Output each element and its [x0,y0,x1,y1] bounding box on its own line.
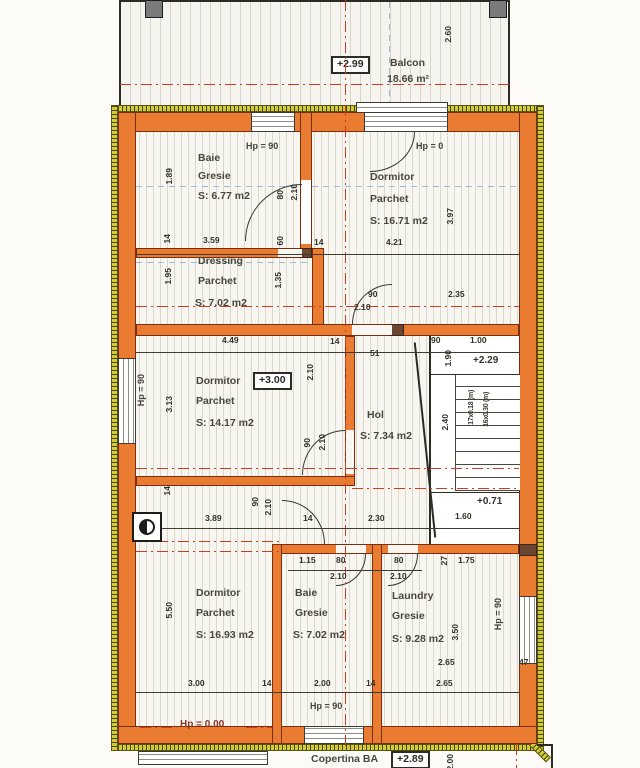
dim: 27 [440,556,449,565]
axis-line [246,727,272,728]
dim: 14 [314,238,323,247]
dim: 2.10 [264,499,273,516]
parapet-note: Hp = 0.00 [180,720,224,730]
insulation [118,105,537,112]
canopy-label: Copertina BA [311,754,378,765]
door-opening [278,249,302,257]
dim: 14 [303,514,312,523]
room-baie1-area: S: 6.77 m2 [198,191,250,202]
room-baie1-finish: Gresie [198,171,231,182]
room-laundry-area: S: 9.28 m2 [392,634,444,645]
dimension-line [136,352,519,353]
dim: 2.00 [314,679,331,688]
dim: 3.00 [188,679,205,688]
window [118,358,136,444]
dim: 3.13 [165,396,174,413]
beam-dash [136,551,282,552]
dim: 1.95 [164,268,173,285]
axis-line [136,186,519,187]
room-baie1-name: Baie [198,153,220,164]
parapet-note: Hp = 90 [494,598,503,630]
dim-balcony-depth: 2.60 [444,26,453,43]
dim: 5.50 [165,602,174,619]
insulation [537,105,544,751]
dim-stair-run: 1.60 [455,512,472,521]
insulation [118,744,537,751]
dimension-line [136,254,519,255]
dim: 2.30 [368,514,385,523]
wall-exterior-top [118,112,537,132]
room-dorm3-finish: Parchet [196,608,235,619]
dim: 47 [519,658,528,667]
vent-icon-core [139,519,155,535]
dim: 1.89 [165,168,174,185]
wall-post [519,544,537,556]
level-marker: +2.89 [391,751,430,768]
dim: 3.89 [205,514,222,523]
level-text: +2.29 [473,356,498,366]
canopy-outline [551,744,553,768]
dim-stair-width: 2.40 [441,414,450,431]
dim-stair-landing: 1.90 [444,350,453,367]
room-hol-name: Hol [367,410,384,421]
door-opening [301,180,311,244]
axis-line [140,727,176,728]
dim: 80 [394,556,403,565]
room-laundry-finish: Gresie [392,611,425,622]
balcony-door-leaf [356,102,448,113]
room-baie2-name: Baie [295,588,317,599]
dim: 2.65 [436,679,453,688]
stair-landing-line [430,492,519,493]
dim: 2.10 [318,434,327,451]
floor-plan: +2.99 Balcon 18.66 m² 2.60 [0,0,640,768]
balcony-edge-left [119,0,121,112]
dim: 3.50 [451,624,460,641]
wall-interior [312,248,324,336]
parapet-note: Hp = 90 [246,142,278,151]
pillar [489,0,507,18]
parapet-note: Hp = 90 [137,374,146,406]
window [519,596,537,664]
balcony-door-opening [364,112,448,132]
dim: 2.35 [448,290,465,299]
dim: 4.21 [386,238,403,247]
dim: 1.00 [470,336,487,345]
dim: 14 [163,486,172,495]
level-marker: +3.00 [253,372,292,390]
dim: 4.49 [222,336,239,345]
stair-riser-note: 17x0.18 (m) [468,390,475,425]
axis-line [352,488,519,489]
canopy-strip [138,751,268,765]
dim: 14 [163,234,172,243]
level-text: +0.71 [477,497,502,507]
dim: 2.10 [390,572,407,581]
door-opening [352,325,392,335]
wall-interior [136,324,519,336]
room-dorm1-finish: Parchet [370,194,409,205]
room-dorm3-area: S: 16.93 m2 [196,630,254,641]
dim: 60 [276,236,285,245]
vent-icon [132,512,162,542]
wall-post [390,324,404,336]
dim: 14 [330,337,339,346]
room-baie2-area: S: 7.02 m2 [293,630,345,641]
room-hol-area: S: 7.34 m2 [360,431,412,442]
level-marker: +2.99 [331,56,370,74]
dim: 14 [262,679,271,688]
axis-line [136,468,519,469]
dim: 80 [276,190,285,199]
dim: 90 [303,438,312,447]
axis-line [120,84,510,85]
dim: 2.10 [306,364,315,381]
insulation [111,105,118,751]
room-dorm2-area: S: 14.17 m2 [196,418,254,429]
dimension-line [136,692,519,693]
axis-line [516,744,517,768]
room-baie2-finish: Gresie [295,608,328,619]
balcony-floor [120,0,510,112]
room-dorm1-area: S: 16.71 m2 [370,216,428,227]
room-laundry-name: Laundry [392,591,433,602]
dim: 90 [251,497,260,506]
axis-line [136,306,519,307]
dim: 90 [431,336,440,345]
room-dorm2-name: Dormitor [196,376,240,387]
dim: 1.75 [458,556,475,565]
dim: 2.65 [438,658,455,667]
dim: 2.10 [330,572,347,581]
dim: 80 [336,556,345,565]
balcony-edge-top [119,0,510,2]
balcony-area: 18.66 m² [387,74,429,85]
dim: 1.15 [299,556,316,565]
room-dorm3-name: Dormitor [196,588,240,599]
axis-line [345,0,346,748]
room-dressing-finish: Parchet [198,276,237,287]
wall-interior [372,544,382,744]
dimension-line [136,528,519,529]
room-dorm1-name: Dormitor [370,172,414,183]
dim: 90 [368,290,377,299]
parapet-note: Hp = 90 [310,702,342,711]
door-opening [336,545,366,553]
parapet-note: Hp = 0 [416,142,443,151]
door-opening [388,545,418,553]
axis-line [389,2,390,110]
dim: 3.59 [203,236,220,245]
dim: 1.35 [274,272,283,289]
room-dressing-name: Dressing [198,256,243,267]
window [304,726,364,744]
balcony-edge-right [508,0,510,112]
dim: 2.00 [446,754,455,768]
wall-interior [272,544,282,744]
window [251,112,295,132]
room-dorm2-finish: Parchet [196,396,235,407]
balcony-name: Balcon [390,58,425,69]
dim: 2.10 [354,303,371,312]
dim: 14 [366,679,375,688]
pillar [145,0,163,18]
wall-interior [136,476,355,486]
room-dressing-area: S: 7.02 m2 [195,298,247,309]
stair-tread-note: 16x0.30 (m) [483,392,490,427]
dim: 3.97 [446,208,455,225]
dim: 2.10 [290,184,299,201]
dim: 51 [370,349,379,358]
